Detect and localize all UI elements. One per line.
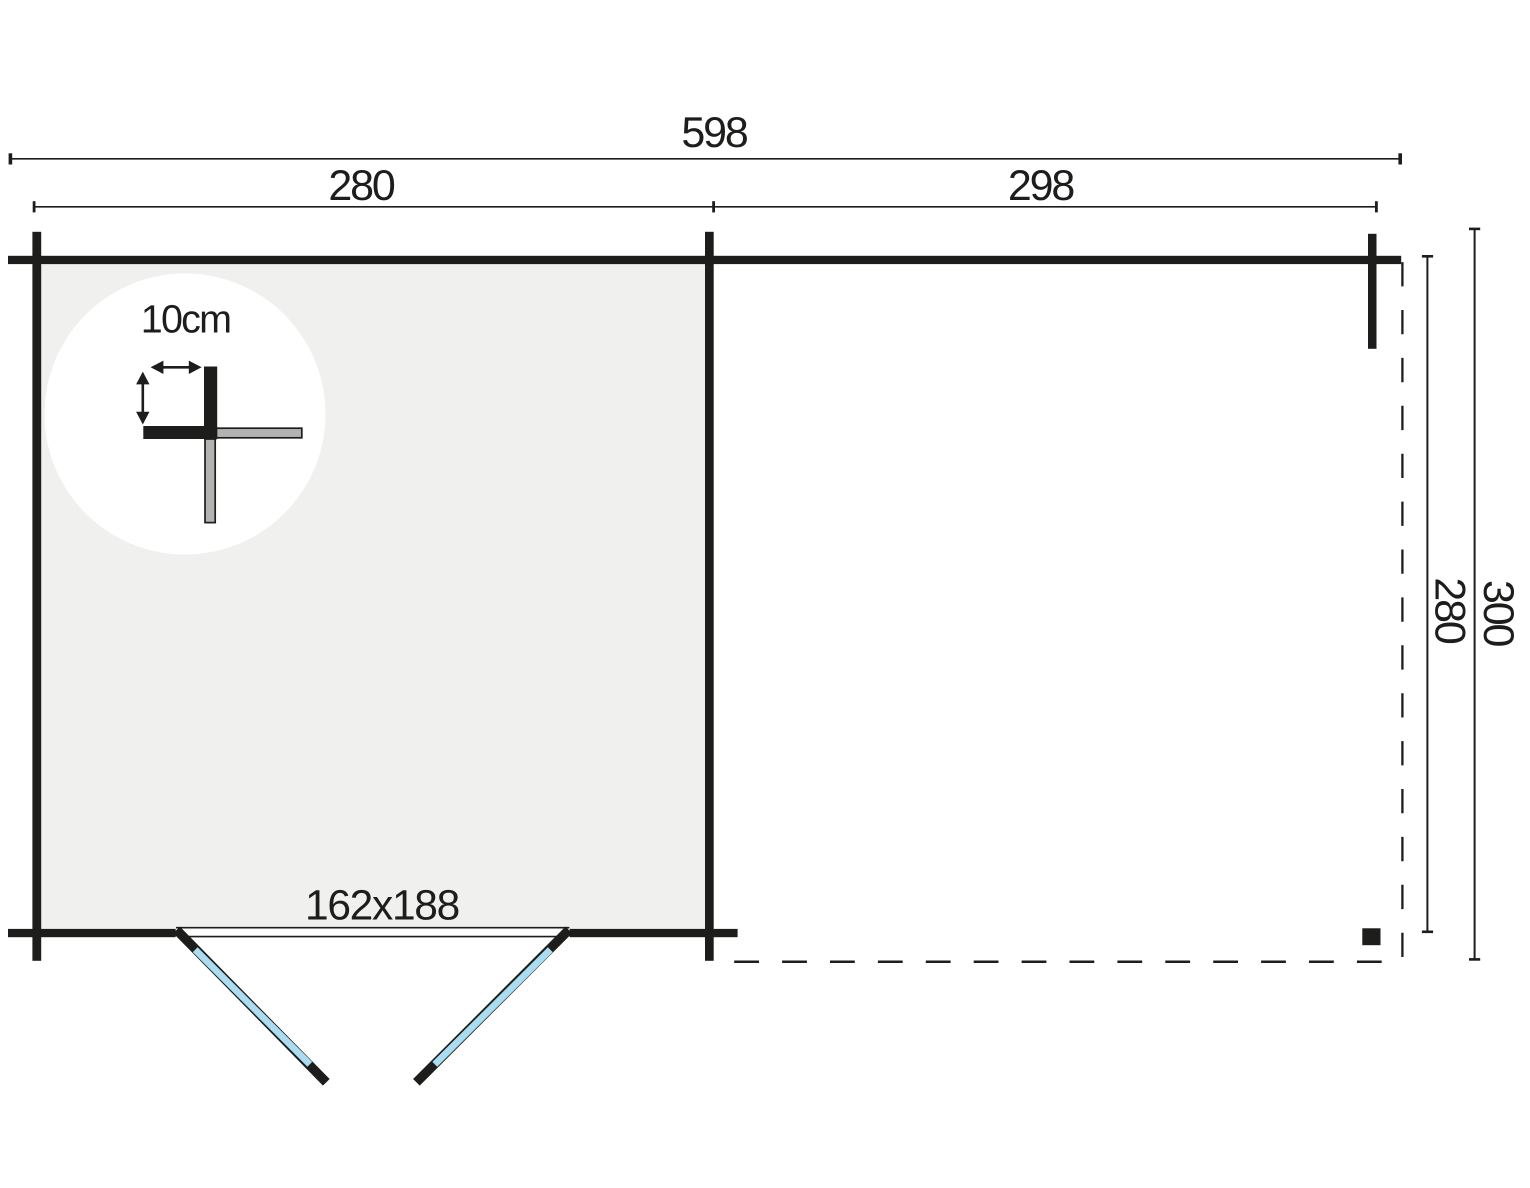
svg-text:300: 300 [1474, 580, 1522, 646]
svg-text:598: 598 [681, 109, 747, 157]
svg-text:162x188: 162x188 [305, 883, 459, 930]
svg-text:280: 280 [1426, 577, 1474, 643]
svg-text:298: 298 [1008, 162, 1074, 210]
svg-text:10cm: 10cm [141, 298, 230, 342]
svg-text:280: 280 [328, 162, 394, 210]
